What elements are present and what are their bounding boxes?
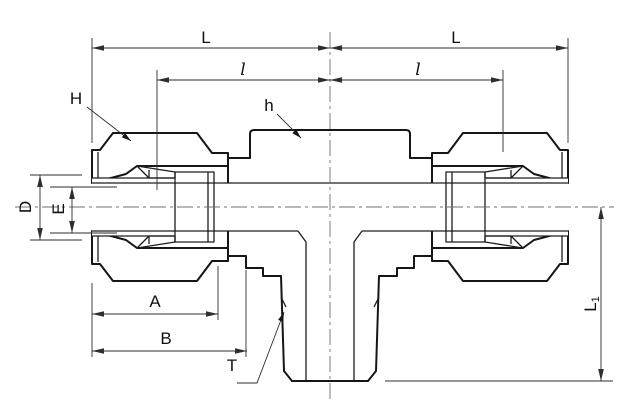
right-ferrule-bottom	[485, 236, 523, 248]
left-ferrule-top	[137, 166, 175, 178]
branch-bore-chamfer-right	[354, 231, 362, 242]
label-H: H	[70, 89, 82, 108]
technical-drawing: L L l l H h D E A B T L1	[0, 0, 629, 412]
leader-h	[277, 114, 301, 138]
branch-bore-chamfer-left	[298, 231, 306, 242]
label-L1-main: L	[581, 302, 600, 311]
label-E: E	[49, 203, 68, 214]
leader-H	[87, 107, 131, 141]
label-B: B	[160, 329, 171, 348]
drawing-canvas: L L l l H h D E A B T L1	[0, 0, 629, 412]
leader-lines	[87, 107, 301, 383]
left-ferrule-bottom	[137, 236, 175, 248]
right-ferrule-top	[485, 166, 523, 178]
label-l-right: l	[415, 60, 420, 80]
leader-T	[237, 312, 284, 383]
label-A: A	[149, 292, 161, 311]
label-l-left: l	[240, 60, 245, 80]
label-L-right: L	[451, 28, 460, 47]
label-L-left: L	[201, 28, 210, 47]
label-D: D	[16, 201, 35, 213]
label-T: T	[227, 356, 237, 375]
label-L1: L1	[581, 296, 602, 312]
label-L1-sub: 1	[590, 296, 602, 302]
label-h: h	[264, 96, 273, 115]
